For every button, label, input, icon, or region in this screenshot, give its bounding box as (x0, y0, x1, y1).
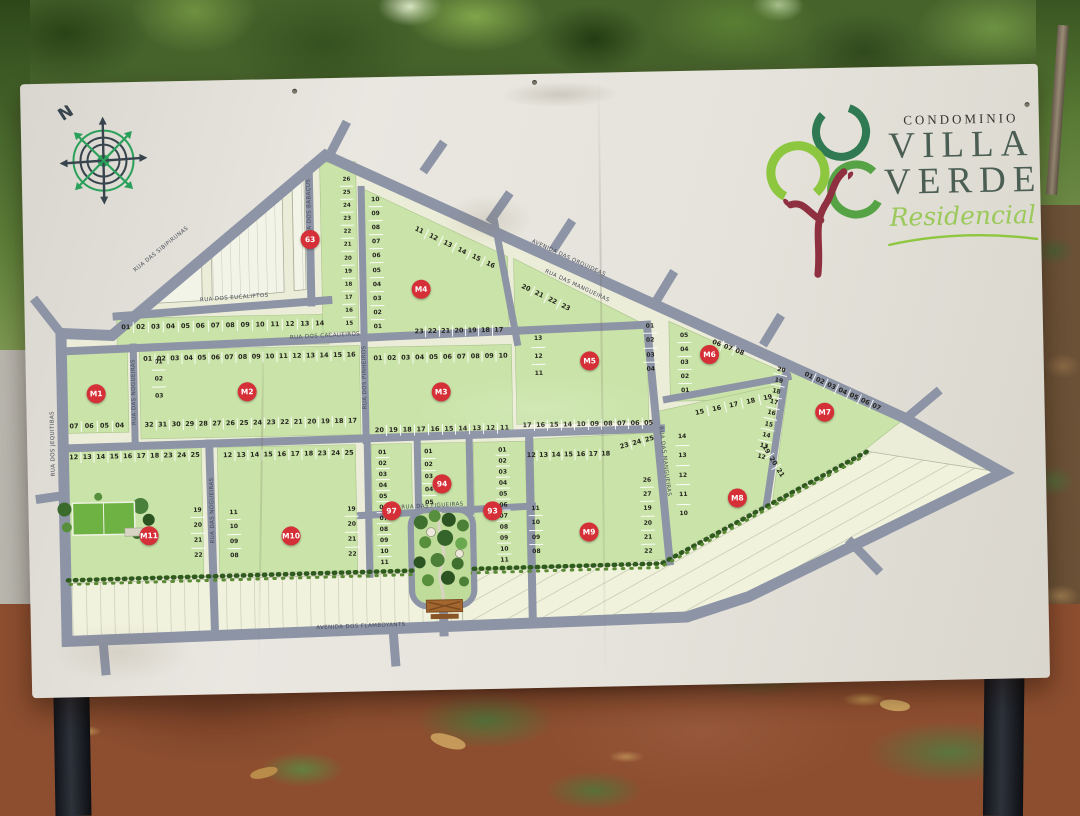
lot-number: 09 (237, 320, 252, 331)
lot-number: 11 (528, 502, 542, 516)
lot-number: 15 (261, 449, 275, 460)
lot-number: 07 (369, 234, 383, 248)
lot-number: 10 (497, 543, 511, 554)
lot-number: 17 (586, 449, 599, 460)
lot-number: 20 (345, 516, 359, 532)
lot-number: 13 (531, 330, 545, 347)
lot-number: 01 (421, 446, 435, 458)
lot-number: 20 (373, 425, 386, 436)
lot-number: 17 (342, 290, 355, 303)
lot-number: 19 (190, 503, 204, 518)
lot-number: 14 (93, 452, 107, 463)
photo-of-condominium-map-sign: RUA DAS SIBIPIRUNAS RUA DOS EUCALIPTOS R… (0, 0, 1080, 816)
compass-north-label: N (54, 104, 77, 126)
lot-number: 25 (237, 418, 251, 429)
lot-number: 11 (226, 506, 240, 520)
lot-number: 26 (223, 418, 237, 429)
lot-number: 10 (262, 351, 276, 362)
lot-number: 23 (413, 326, 425, 337)
logo-title-verde: VERDE (884, 162, 1041, 201)
lot-column: 11100908 (226, 506, 241, 562)
lot-number: 18 (332, 416, 346, 427)
lot-column: 11100908 (528, 502, 543, 558)
lot-number: 03 (370, 291, 384, 305)
lot-number: 22 (191, 547, 205, 563)
lot-number: 05 (677, 329, 691, 342)
lot-number: 08 (222, 320, 237, 331)
lot-number: 16 (342, 303, 355, 316)
lot-number: 05 (96, 421, 111, 432)
lot-number: 01 (371, 353, 384, 364)
lot-number: 03 (398, 352, 412, 363)
lot-number: 21 (438, 326, 451, 337)
lot-number: 10 (496, 351, 510, 362)
lot-number: 18 (301, 448, 315, 459)
lot-number: 08 (369, 220, 383, 234)
lot-number: 01 (678, 383, 692, 397)
lot-number: 08 (497, 521, 511, 532)
lot-number: 21 (291, 417, 305, 428)
lot-number: 12 (67, 452, 80, 463)
lot-number: 14 (675, 427, 689, 446)
lot-number: 15 (343, 316, 356, 329)
logo-tree-icon (756, 89, 888, 280)
lot-number: 02 (133, 322, 148, 333)
lot-number: 04 (496, 477, 510, 488)
park-kiosk (455, 549, 463, 557)
lot-number: 17 (134, 451, 148, 462)
lot-number: 20 (191, 517, 205, 533)
lot-number: 20 (341, 251, 354, 264)
lot-number: 31 (155, 419, 169, 430)
lot-number: 14 (317, 350, 331, 361)
lot-number: 22 (425, 326, 438, 337)
lot-number: 06 (81, 421, 96, 432)
lot-number: 07 (454, 351, 468, 362)
lot-number: 17 (288, 449, 302, 460)
lot-number: 30 (169, 419, 183, 430)
logo-subtitle: Residencial (884, 200, 1041, 232)
lot-number: 24 (174, 450, 188, 461)
lot-number: 02 (152, 369, 166, 386)
lot-number: 29 (182, 419, 196, 430)
lot-number: 03 (643, 347, 657, 362)
lot-number: 07 (67, 421, 81, 432)
lot-number: 26 (340, 174, 353, 186)
lot-number: 01 (495, 445, 509, 455)
lot-number: 04 (181, 353, 195, 364)
screw (532, 80, 537, 85)
lot-number: 09 (377, 534, 391, 545)
lot-column: 01020304 (643, 320, 658, 376)
lot-number: 08 (227, 548, 241, 563)
condominium-logo: CONDOMINIO VILLA VERDE Residencial (756, 82, 1042, 288)
lot-number: 20 (304, 416, 318, 427)
lot-number: 19 (640, 501, 654, 515)
lot-number: 07 (222, 352, 236, 363)
lot-number: 12 (525, 450, 537, 461)
lot-number: 10 (227, 519, 241, 534)
lot-number: 02 (370, 305, 384, 319)
lot-row: 07060504 (67, 420, 127, 432)
lot-number: 12 (290, 351, 304, 362)
lot-number: 16 (274, 449, 288, 460)
lot-number: 13 (537, 450, 550, 461)
lot-number: 11 (676, 484, 690, 504)
lot-number: 13 (234, 450, 248, 461)
lot-number: 02 (422, 458, 436, 471)
entrance-gate (426, 600, 462, 620)
lot-number: 03 (496, 466, 510, 477)
lot-number: 12 (282, 319, 297, 330)
lot-number: 21 (341, 238, 354, 251)
lot-number: 02 (154, 353, 168, 364)
compass-rose: N (48, 104, 150, 206)
lot-row: 12131415161718 (525, 448, 611, 461)
lot-number: 09 (529, 529, 543, 544)
lot-number: 15 (330, 350, 344, 361)
lot-number: 05 (177, 321, 192, 332)
lot-number: 02 (678, 369, 692, 383)
lot-number: 12 (676, 465, 690, 485)
lot-number: 22 (641, 543, 655, 557)
lot-number: 12 (531, 346, 545, 364)
lot-number: 19 (344, 502, 358, 517)
lot-number: 16 (344, 350, 358, 361)
lot-number: 03 (167, 353, 181, 364)
lot-number: 05 (195, 353, 209, 364)
lot-number: 18 (342, 277, 355, 290)
lot-number: 04 (376, 479, 390, 490)
lot-number: 20 (641, 515, 655, 529)
lot-number: 13 (297, 318, 312, 329)
lot-number: 06 (440, 352, 454, 363)
lot-number: 24 (340, 199, 353, 212)
lot-number: 10 (368, 193, 382, 206)
lot-number: 04 (370, 277, 384, 291)
lot-number: 03 (152, 386, 166, 403)
lot-number: 24 (328, 448, 342, 459)
lot-number: 10 (377, 545, 391, 556)
lot-column: 19202122 (344, 502, 359, 562)
lot-number: 04 (162, 321, 177, 332)
lot-number: 22 (341, 225, 354, 238)
signboard: RUA DAS SIBIPIRUNAS RUA DOS EUCALIPTOS R… (20, 64, 1050, 698)
lot-number: 03 (148, 321, 163, 332)
lot-number: 10 (529, 515, 543, 530)
lot-number: 14 (312, 318, 327, 329)
lot-number: 14 (549, 449, 562, 460)
lot-number: 10 (676, 504, 690, 524)
lot-number: 13 (675, 445, 689, 465)
lot-number: 18 (147, 451, 161, 462)
lot-number: 27 (210, 418, 224, 429)
lot-number: 23 (315, 448, 329, 459)
screw (292, 89, 297, 94)
lot-number: 06 (192, 321, 207, 332)
lot-number: 25 (188, 450, 202, 461)
lot-number: 08 (235, 352, 249, 363)
lot-number: 06 (369, 248, 383, 262)
lot-number: 13 (303, 350, 317, 361)
lot-number: 01 (375, 447, 389, 457)
lot-number: 21 (345, 531, 359, 547)
lot-number: 25 (342, 448, 356, 459)
lot-column: 19202122 (190, 503, 205, 563)
lot-number: 05 (376, 490, 390, 501)
lot-row: 23222120191817 (413, 325, 505, 338)
lot-number: 05 (496, 488, 510, 499)
lot-number: 19 (318, 416, 332, 427)
lot-number: 17 (345, 416, 359, 427)
lot-number: 19 (465, 325, 478, 336)
lot-number: 01 (119, 322, 133, 333)
lot-number: 15 (562, 449, 575, 460)
lot-number: 11 (377, 556, 391, 567)
lot-number: 01 (371, 319, 385, 333)
lot-number: 05 (370, 262, 384, 276)
lot-number: 23 (341, 212, 354, 225)
lot-number: 15 (107, 451, 121, 462)
lot-number: 28 (196, 419, 210, 430)
lot-number: 02 (643, 333, 657, 348)
lot-number: 14 (247, 450, 261, 461)
lot-number: 27 (640, 487, 654, 501)
lot-number: 09 (482, 351, 496, 362)
lot-number: 22 (345, 546, 359, 562)
lot-number: 02 (495, 455, 509, 466)
lot-number: 01 (643, 320, 657, 334)
lot-number: 07 (207, 320, 222, 331)
lot-number: 05 (426, 352, 440, 363)
lot-number: 04 (111, 420, 126, 431)
lot-number: 16 (120, 451, 134, 462)
lot-number: 20 (452, 325, 465, 336)
lot-number: 12 (221, 450, 234, 461)
lot-number: 04 (677, 342, 691, 356)
lot-number: 02 (375, 457, 389, 468)
lot-number: 25 (340, 186, 353, 199)
lot-number: 21 (641, 529, 655, 543)
lot-number: 19 (342, 264, 355, 277)
lot-number: 22 (277, 417, 291, 428)
lot-number: 10 (252, 319, 267, 330)
lot-number: 13 (80, 452, 94, 463)
lot-column: 0504030201 (677, 329, 692, 397)
lot-number: 04 (412, 352, 426, 363)
lot-number: 11 (267, 319, 282, 330)
lot-number: 09 (497, 532, 511, 543)
lot-number: 21 (191, 532, 205, 548)
lot-number: 08 (468, 351, 482, 362)
lot-number: 08 (529, 544, 543, 559)
lot-number: 09 (227, 533, 241, 548)
lot-column: 1413121110 (675, 427, 691, 523)
street-label: RUA DOS PINHEIROS (361, 345, 368, 409)
lot-number: 05 (422, 495, 436, 508)
lot-number: 26 (640, 474, 654, 487)
screw (1025, 102, 1030, 107)
logo-swoosh (885, 230, 1041, 247)
lot-column: 10090807060504030201 (368, 193, 385, 333)
lot-number: 06 (208, 352, 222, 363)
lot-number: 23 (264, 417, 278, 428)
lot-number: 02 (384, 353, 398, 364)
park-kiosk (426, 528, 435, 537)
lot-number: 19 (386, 425, 400, 436)
lot-number: 32 (143, 420, 156, 431)
lot-number: 17 (492, 325, 505, 336)
lot-number: 23 (161, 450, 175, 461)
lot-number: 18 (478, 325, 491, 336)
lot-number: 11 (276, 351, 290, 362)
lot-number: 16 (574, 449, 587, 460)
lot-number: 09 (368, 206, 382, 220)
lot-number: 03 (376, 468, 390, 479)
lot-number: 08 (377, 523, 391, 534)
lot-number: 09 (249, 351, 263, 362)
lot-number: 03 (678, 355, 692, 369)
lot-column: 262719202122 (640, 474, 656, 558)
lot-number: 01 (141, 354, 154, 365)
lot-number: 11 (497, 554, 511, 565)
street-label: RUA DOS JEQUITIBAS (50, 411, 57, 477)
